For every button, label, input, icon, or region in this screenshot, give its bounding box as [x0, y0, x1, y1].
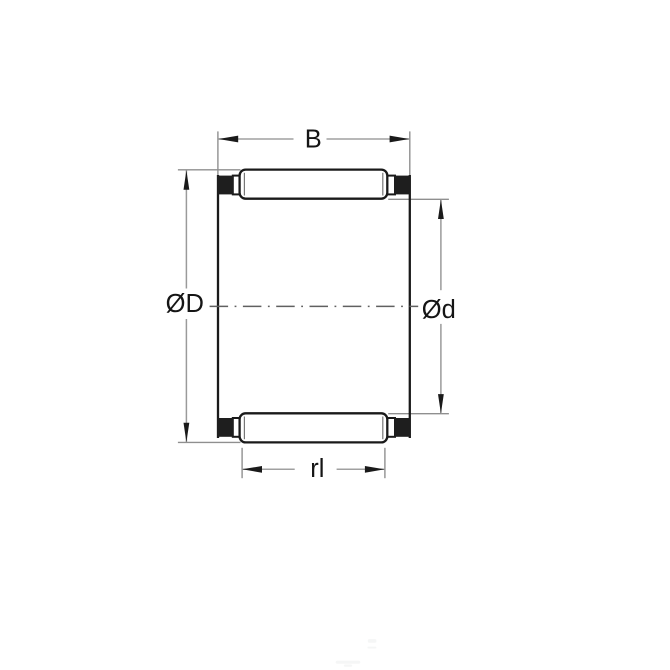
- svg-text:ØD: ØD: [166, 290, 204, 318]
- svg-text:Ød: Ød: [422, 296, 456, 324]
- svg-text:B: B: [305, 126, 322, 154]
- svg-text:rl: rl: [310, 455, 324, 483]
